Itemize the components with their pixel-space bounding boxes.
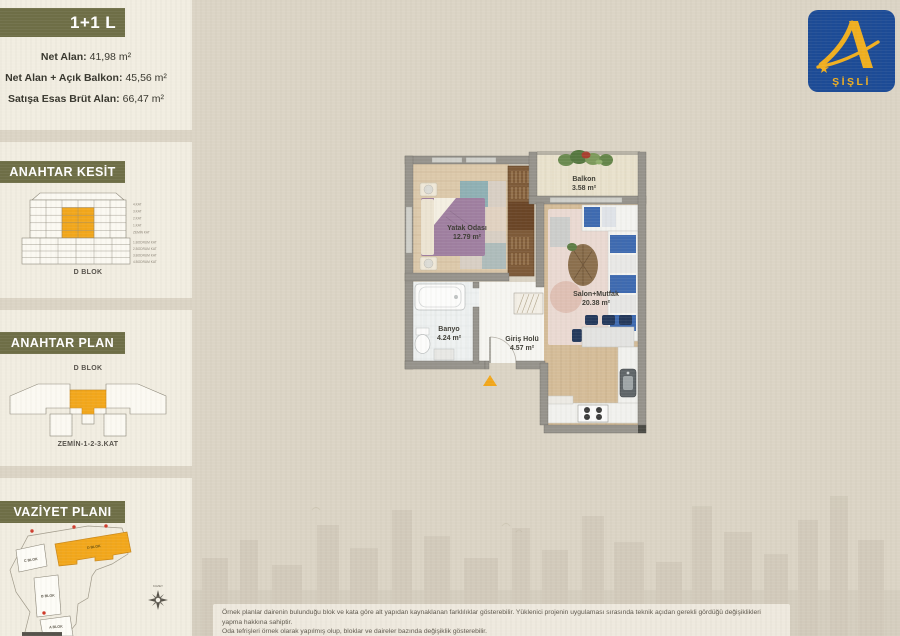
- stove-icon: [578, 405, 608, 422]
- hall-label: Giriş Holü 4.57 m²: [477, 335, 567, 353]
- unit-type-label: 1+1 L: [70, 13, 116, 33]
- area-stats: Net Alan: 41,98 m² Net Alan + Açık Balko…: [0, 46, 172, 109]
- compass-north-label: KUZEY: [153, 584, 163, 588]
- sink-icon: [620, 369, 636, 397]
- balcony-label: Balkon 3.58 m²: [539, 175, 629, 193]
- logo-brand-text: ŞİŞLİ: [832, 75, 871, 88]
- disclaimer-text: Örnek planlar dairenin bulunduğu blok ve…: [213, 604, 790, 636]
- key-section-diagram: 4.KAT 3.KAT 2.KAT 1.KAT ZEMİN KAT 1.BODR…: [4, 190, 180, 268]
- bathtub-icon: [415, 284, 465, 310]
- floor-label: 4.KAT: [133, 203, 142, 207]
- unit-type-banner: 1+1 L: [0, 8, 125, 37]
- compass-rose-icon: KUZEY: [148, 584, 168, 610]
- project-logo: ★ ŞİŞLİ: [808, 10, 895, 92]
- bathroom-cabinet: [434, 349, 454, 360]
- key-plan-floors-label: ZEMİN-1-2-3.KAT: [0, 441, 176, 448]
- brochure-page: 1+1 L Net Alan: 41,98 m² Net Alan + Açık…: [0, 0, 900, 636]
- key-plan-diagram: [8, 376, 168, 438]
- key-section-block-label: D BLOK: [0, 269, 176, 276]
- logo-star-icon: ★: [818, 61, 830, 76]
- floor-label: 3.KAT: [133, 210, 142, 214]
- floor-label: 2.BODRUM KAT: [133, 247, 157, 251]
- shoe-closet: [514, 293, 543, 314]
- site-plan-edge-element: [22, 632, 62, 636]
- stat-net-alan-balkon: Net Alan + Açık Balkon: 45,56 m²: [0, 67, 172, 88]
- floor-label: ZEMİN KAT: [133, 230, 150, 235]
- key-plan-banner: ANAHTAR PLAN: [0, 332, 125, 354]
- site-plan-banner: VAZİYET PLANI: [0, 501, 125, 523]
- floor-label: 1.BODRUM KAT: [133, 241, 157, 245]
- living-room-label: Salon+Mutfak 20.38 m²: [551, 290, 641, 308]
- floor-label: 1.KAT: [133, 224, 142, 228]
- stat-net-alan: Net Alan: 41,98 m²: [0, 46, 172, 67]
- floor-label: 4.BODRUM KAT: [133, 260, 157, 264]
- floor-label: 2.KAT: [133, 217, 142, 221]
- site-plan-diagram: C BLOK D BLOK B BLOK A BLOK KUZEY: [0, 520, 200, 636]
- wall-corner: [638, 425, 646, 433]
- stat-brut-alan: Satışa Esas Brüt Alan: 66,47 m²: [0, 88, 172, 109]
- entrance-marker-icon: [483, 375, 497, 386]
- logo-a-right-leg: [849, 21, 873, 68]
- floor-label: 3.BODRUM KAT: [133, 254, 157, 258]
- bedroom-label: Yatak Odası 12.79 m²: [422, 224, 512, 242]
- key-plan-block-label: D BLOK: [0, 365, 176, 372]
- key-section-banner: ANAHTAR KESİT: [0, 161, 125, 183]
